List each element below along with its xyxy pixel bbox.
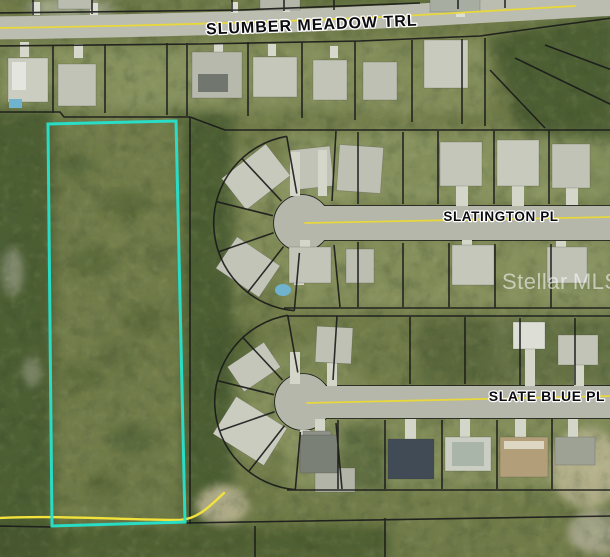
watermark-brand: Stellar [502,269,568,294]
house [346,249,374,283]
house-roof-detail [504,441,544,449]
house [289,247,331,283]
house [313,60,347,100]
house-roof-detail [198,74,228,92]
watermark-suffix: MLS [573,269,610,294]
house [336,145,383,194]
house [58,64,96,106]
watermark-stellar-mls: StellarMLS™ [502,269,610,294]
street-label-slatington-pl: SLATINGTON PL [443,209,558,224]
house [363,62,397,100]
house [558,335,598,365]
house-roof-detail [12,62,26,90]
house [555,437,595,465]
house [552,144,590,188]
pool-enclosure [452,442,484,466]
street-label-slate-blue-pl: SLATE BLUE PL [489,388,605,404]
pool [9,99,22,108]
pool [275,284,291,296]
house [58,0,92,9]
house [513,322,545,349]
map-canvas: SLUMBER MEADOW TRL SLATINGTON PL SLATE B… [0,0,610,557]
house [253,57,297,97]
house [300,435,338,473]
house [388,439,434,479]
house [440,142,482,186]
house [452,245,494,285]
house [497,140,539,186]
house [430,0,480,12]
aerial-parcel-map[interactable]: SLUMBER MEADOW TRL SLATINGTON PL SLATE B… [0,0,610,557]
